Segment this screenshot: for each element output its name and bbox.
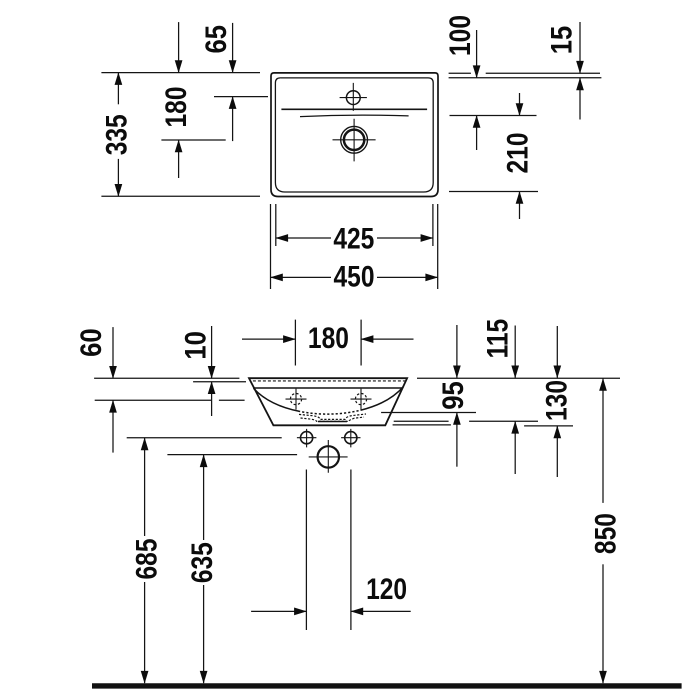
svg-text:115: 115	[480, 319, 514, 359]
svg-text:130: 130	[540, 380, 574, 421]
svg-text:10: 10	[179, 331, 212, 360]
svg-text:335: 335	[99, 114, 133, 155]
svg-text:180: 180	[308, 321, 349, 355]
svg-text:100: 100	[443, 15, 477, 56]
svg-text:210: 210	[501, 133, 535, 174]
svg-text:685: 685	[129, 539, 163, 580]
svg-text:120: 120	[366, 572, 407, 606]
svg-text:60: 60	[74, 328, 107, 357]
svg-text:95: 95	[437, 381, 470, 410]
svg-text:15: 15	[545, 26, 578, 55]
svg-text:450: 450	[334, 259, 375, 293]
svg-text:65: 65	[199, 25, 232, 54]
svg-text:635: 635	[185, 542, 219, 583]
svg-text:850: 850	[588, 513, 622, 554]
svg-text:180: 180	[159, 87, 193, 128]
svg-text:425: 425	[333, 221, 374, 255]
